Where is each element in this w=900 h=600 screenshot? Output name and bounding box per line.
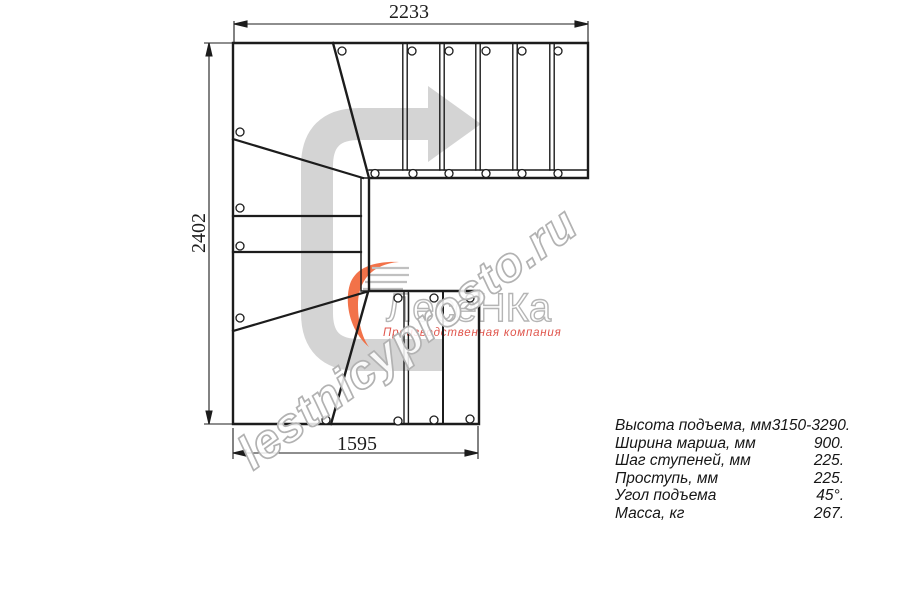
dim-arrow-icon [575, 21, 588, 27]
stair-plan-page: ЛесеНКа Производственная компания [0, 0, 900, 600]
spec-value: 225. [814, 452, 844, 470]
spec-row: Ширина марша, мм 900. [615, 435, 844, 453]
dim-bottom-label: 1595 [337, 433, 377, 455]
spec-label: Высота подъема, мм [615, 417, 772, 435]
spec-value: 267. [814, 505, 844, 523]
spec-label: Шаг ступеней, мм [615, 452, 751, 470]
dim-left-label: 2402 [188, 213, 210, 253]
dim-arrow-icon [206, 43, 212, 56]
spec-value: 3150-3290. [772, 417, 850, 435]
dimension-top: 2233 [234, 1, 588, 42]
dim-top-label: 2233 [389, 1, 429, 23]
spec-label: Угол подъема [615, 487, 716, 505]
dim-arrow-icon [234, 21, 247, 27]
spec-value: 45°. [816, 487, 844, 505]
spec-label: Проступь, мм [615, 470, 718, 488]
spec-row: Высота подъема, мм 3150-3290. [615, 417, 844, 435]
spec-label: Масса, кг [615, 505, 684, 523]
dimension-left: 2402 [188, 43, 232, 424]
top-flight-divisions [403, 43, 554, 170]
spec-row: Проступь, мм 225. [615, 470, 844, 488]
spec-row: Масса, кг 267. [615, 505, 844, 523]
winder-diagonals [233, 139, 366, 331]
spec-label: Ширина марша, мм [615, 435, 756, 453]
dim-arrow-icon [206, 411, 212, 424]
left-tread-lines [233, 216, 361, 252]
spec-value: 225. [814, 470, 844, 488]
dim-arrow-icon [465, 450, 478, 456]
spec-value: 900. [814, 435, 844, 453]
specs-table: Высота подъема, мм 3150-3290. Ширина мар… [615, 417, 844, 523]
spec-row: Шаг ступеней, мм 225. [615, 452, 844, 470]
spec-row: Угол подъема 45°. [615, 487, 844, 505]
